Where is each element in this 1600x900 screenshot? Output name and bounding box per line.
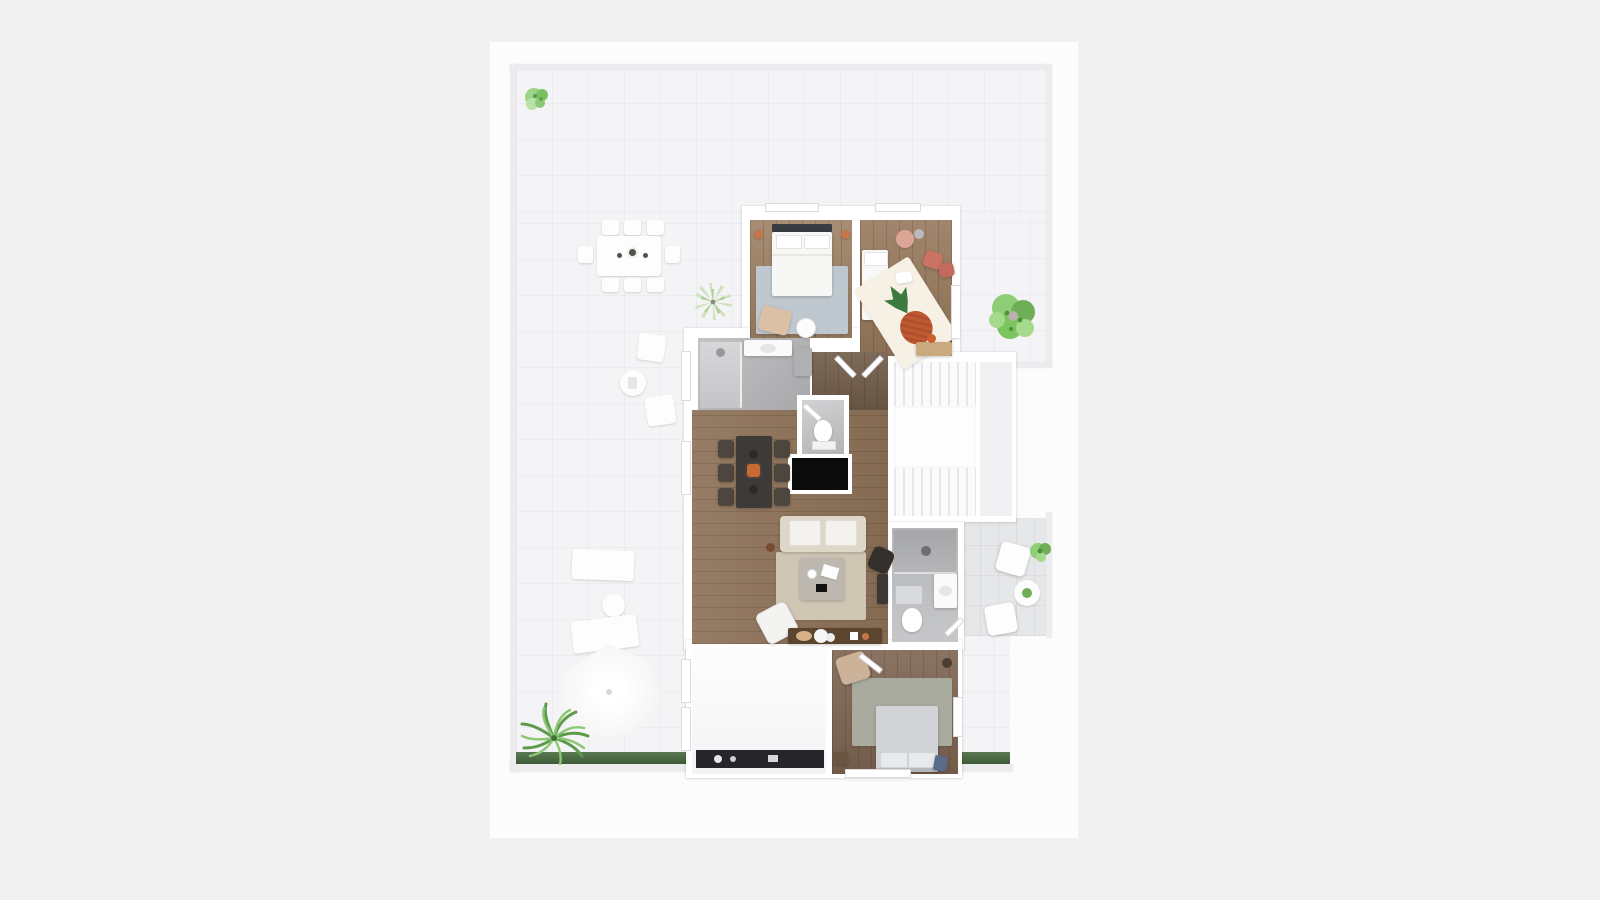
bed-pillow [908,752,936,768]
fireplace-unit [792,458,848,490]
kids-desk [916,342,952,356]
stairs-landing [894,406,976,468]
window-kidsroom-right [952,286,960,338]
window-bedroom2-right [954,698,962,736]
bedroom2-nightstand [834,752,848,765]
console-item [850,632,858,640]
bedroom1-lamp-left [754,230,763,239]
bathroom-shower [700,342,742,408]
outdoor-dining-chair [602,277,619,292]
bed-pillow [880,752,908,768]
console-plate [826,633,835,642]
outdoor-dining-chair [624,220,641,235]
kids-desk-chair [927,334,936,343]
outdoor-dining-table [597,236,661,276]
window-dining-left [682,442,690,494]
grass-strip-right [958,752,1010,764]
shower-head [716,348,725,357]
sofa-cushion [789,520,821,546]
dining-chair [774,464,790,482]
bathroom-cabinet [794,348,812,376]
terrace-wall-right-upper [1046,64,1052,367]
bed-pillow [804,235,830,249]
terrace-floor-top [516,70,1046,212]
kids-round-table [896,230,914,248]
coffee-table-book [816,584,827,592]
terrace-wall-left [510,64,516,772]
table-centerpiece [747,464,760,477]
vanity-sink [760,344,776,353]
dining-chair [718,464,734,482]
wc-toilet-tank [812,441,836,450]
terrace-lounge-chair [636,332,666,362]
dining-chair [718,440,734,458]
vanity-sink [939,586,952,596]
ensuite-toilet [902,608,922,632]
bedroom1-headboard [772,224,832,232]
kids-gray-stool [914,229,924,239]
terrace-side-table [620,370,646,396]
stairs-void [980,362,1012,516]
bedroom1-lamp-right [841,230,850,239]
dining-table [736,436,772,508]
balcony-armchair [984,602,1019,637]
lounger-side-table [602,594,625,617]
outdoor-dining-chair [647,277,664,292]
outdoor-dining-chair [647,220,664,235]
stairs-lower-flight [894,468,976,516]
ensuite-vanity [934,574,957,608]
outdoor-dining-chair [624,277,641,292]
coffee-table-paper [821,564,840,580]
table-bowl [617,253,622,258]
utility-small-object [768,755,778,762]
window-kidsroom-top [876,204,920,211]
terrace-wall-notch [1010,362,1052,368]
coffee-table [800,558,844,600]
window-utility-left [682,708,690,750]
dining-chair [774,488,790,506]
bedroom1-bed [772,232,832,296]
ensuite-bathmat [896,586,922,604]
window-bedroom2-bottom [846,770,910,777]
table-bowl [643,253,648,258]
terrace-wall-right-balcony [1046,512,1052,638]
outdoor-dining-chair [602,220,619,235]
floor-plan-canvas [0,0,1600,900]
bathroom-vanity [744,340,792,356]
terrace-wall-top [510,64,1050,70]
sofa-cushion [825,520,857,546]
shower-drain [921,546,931,556]
console-item-copper [862,633,869,640]
wc-toilet [814,420,832,442]
living-throw-item [766,543,775,552]
window-bedroom1-top [766,204,818,211]
coffee-table-cup [807,569,817,579]
utility-room-glazed-band [696,750,824,768]
utility-small-object [730,756,736,762]
terrace-floor-bottom-right [958,636,1010,764]
dining-chair [718,488,734,506]
bedroom2-decor-item [942,658,952,668]
terrace-large-plant-icon [980,286,1046,350]
table-knob [749,485,758,494]
bedroom2-blue-stool [933,755,948,772]
utility-small-object [714,755,722,763]
yucca-plant-icon [692,282,734,322]
balcony-plant-icon [1026,538,1054,566]
bed-fold-line [772,254,832,256]
sofa [780,516,866,552]
bed-pillow [864,252,888,266]
outdoor-dining-chair [665,246,680,263]
ensuite-shower [894,530,956,574]
corner-bush-icon [520,82,554,116]
dining-chair [774,440,790,458]
tv-console [788,628,882,644]
console-basket [796,631,812,641]
terrace-lounge-chair [644,394,677,427]
umbrella-pole [606,689,612,695]
window-bathroom-left [682,352,690,400]
table-bowl [629,249,636,256]
balcony-table-plant [1022,588,1032,598]
wall-desk [877,574,888,604]
balcony-table [1014,580,1040,606]
table-tray [628,377,637,389]
sun-lounger [571,549,634,581]
window-utility-left [682,660,690,702]
fan-palm-icon [514,696,592,770]
bed-pillow [776,235,802,249]
stairs-upper-flight [894,362,976,406]
bedroom1-side-table [796,318,816,338]
table-knob [749,450,758,459]
outdoor-dining-chair [578,246,593,263]
bedroom2-bed [876,706,938,772]
